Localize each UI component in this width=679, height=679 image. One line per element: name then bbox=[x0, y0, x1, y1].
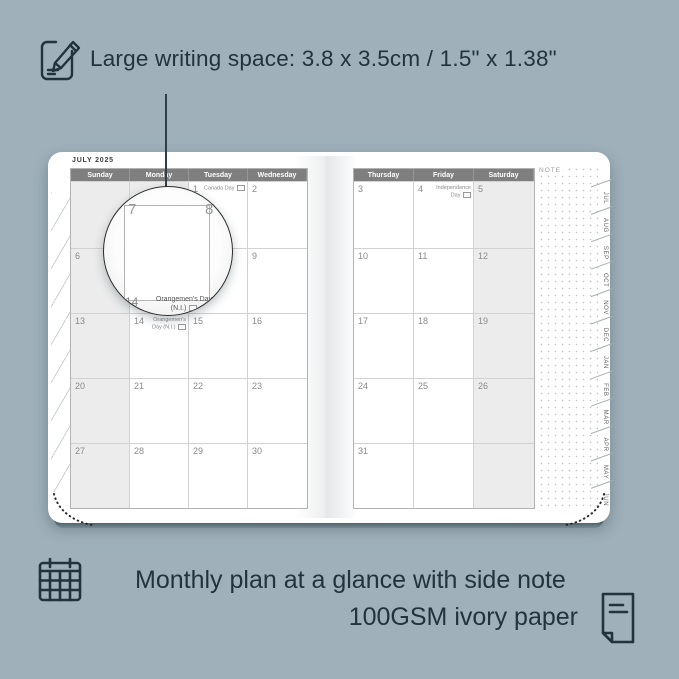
calendar-cell-21: 21 bbox=[130, 378, 189, 443]
pencil-notepad-icon bbox=[38, 33, 84, 85]
calendar-cell-29: 29 bbox=[189, 443, 248, 508]
day-header-tuesday: Tuesday bbox=[189, 169, 248, 181]
calendar-cell-18: 18 bbox=[414, 313, 474, 378]
holiday-label: Orangemen's Day (N.I.) bbox=[144, 317, 186, 332]
day-number: 3 bbox=[358, 184, 363, 194]
day-number: 13 bbox=[75, 316, 85, 326]
calendar-cell-17: 17 bbox=[354, 313, 414, 378]
day-number: 21 bbox=[134, 381, 144, 391]
day-number: 31 bbox=[358, 446, 368, 456]
day-number: 17 bbox=[358, 316, 368, 326]
day-number: 23 bbox=[252, 381, 262, 391]
tab-divider bbox=[591, 480, 613, 488]
day-number: 18 bbox=[418, 316, 428, 326]
flag-icon bbox=[178, 324, 186, 330]
month-tabs: JULAUGSEPOCTNOVDECJANFEBMARAPRMAYJUN bbox=[590, 178, 614, 514]
month-tab-may: MAY bbox=[602, 465, 608, 479]
day-header-monday: Monday bbox=[130, 169, 189, 181]
calendar-cell-31: 31 bbox=[354, 443, 414, 508]
day-number: 26 bbox=[478, 381, 488, 391]
calendar-cell-20: 20 bbox=[71, 378, 130, 443]
holiday-label: Canada Day bbox=[204, 185, 245, 193]
day-number: 27 bbox=[75, 446, 85, 456]
day-number: 30 bbox=[252, 446, 262, 456]
corner-perforation-right bbox=[564, 492, 606, 528]
day-number: 22 bbox=[193, 381, 203, 391]
day-number: 9 bbox=[252, 251, 257, 261]
month-tab-feb: FEB bbox=[602, 383, 608, 396]
month-tab-dec: DEC bbox=[602, 328, 608, 343]
calendar-cell-3: 3 bbox=[354, 181, 414, 248]
month-title: JULY 2025 bbox=[72, 157, 114, 164]
calendar-cell-30: 30 bbox=[248, 443, 307, 508]
day-header-friday: Friday bbox=[414, 169, 474, 181]
calendar-cell bbox=[414, 443, 474, 508]
paper-icon bbox=[594, 592, 640, 646]
tab-divider bbox=[591, 316, 613, 324]
calendar-cell-25: 25 bbox=[414, 378, 474, 443]
day-number: 14 bbox=[134, 316, 144, 326]
flag-icon bbox=[463, 192, 471, 198]
calendar-cell-4: 4Independence Day bbox=[414, 181, 474, 248]
note-dot-grid bbox=[538, 166, 598, 507]
magnified-day-8: 8 bbox=[205, 201, 213, 218]
day-header-thursday: Thursday bbox=[354, 169, 414, 181]
day-number: 25 bbox=[418, 381, 428, 391]
bottom-feature-line2: 100GSM ivory paper bbox=[349, 603, 578, 632]
calendar-cell-11: 11 bbox=[414, 248, 474, 313]
month-tab-mar: MAR bbox=[602, 410, 608, 425]
magnified-day-14: 14 bbox=[125, 295, 138, 309]
magnifier-circle: 7 8 14 Orangemen's Day (N.I.) bbox=[103, 186, 233, 316]
day-number: 12 bbox=[478, 251, 488, 261]
day-number: 15 bbox=[193, 316, 203, 326]
tab-divider bbox=[591, 426, 613, 434]
month-tab-oct: OCT bbox=[602, 273, 608, 287]
calendar-icon bbox=[36, 556, 84, 604]
month-tab-aug: AUG bbox=[602, 218, 608, 233]
magnified-day-7: 7 bbox=[128, 201, 136, 218]
day-number: 6 bbox=[75, 251, 80, 261]
month-tab-jul: JUL bbox=[602, 192, 608, 205]
right-calendar-grid: ThursdayFridaySaturday34Independence Day… bbox=[353, 168, 535, 509]
day-number: 16 bbox=[252, 316, 262, 326]
calendar-cell-22: 22 bbox=[189, 378, 248, 443]
calendar-cell-19: 19 bbox=[474, 313, 534, 378]
tab-divider bbox=[591, 289, 613, 297]
tab-divider bbox=[591, 234, 613, 242]
day-number: 29 bbox=[193, 446, 203, 456]
calendar-cell-13: 13 bbox=[71, 313, 130, 378]
calendar-cell bbox=[474, 443, 534, 508]
month-tab-apr: APR bbox=[602, 438, 608, 452]
bottom-feature-line1: Monthly plan at a glance with side note bbox=[135, 566, 566, 595]
note-label: NOTE bbox=[539, 167, 563, 175]
calendar-cell-12: 12 bbox=[474, 248, 534, 313]
flag-icon bbox=[237, 185, 245, 191]
day-number: 10 bbox=[358, 251, 368, 261]
calendar-cell-23: 23 bbox=[248, 378, 307, 443]
page-edge-hatching bbox=[51, 192, 71, 492]
writing-space-outline bbox=[124, 205, 210, 301]
calendar-cell-10: 10 bbox=[354, 248, 414, 313]
tab-divider bbox=[591, 206, 613, 214]
day-number: 28 bbox=[134, 446, 144, 456]
flag-icon bbox=[189, 305, 197, 311]
day-header-saturday: Saturday bbox=[474, 169, 534, 181]
calendar-cell-28: 28 bbox=[130, 443, 189, 508]
tab-divider bbox=[591, 179, 613, 187]
calendar-cell-15: 15 bbox=[189, 313, 248, 378]
calendar-cell-26: 26 bbox=[474, 378, 534, 443]
top-feature-text: Large writing space: 3.8 x 3.5cm / 1.5" … bbox=[90, 46, 557, 72]
corner-perforation-left bbox=[52, 492, 94, 528]
day-number: 4 bbox=[418, 184, 423, 194]
day-header-sunday: Sunday bbox=[71, 169, 130, 181]
day-number: 19 bbox=[478, 316, 488, 326]
day-header-wednesday: Wednesday bbox=[248, 169, 307, 181]
tab-divider bbox=[591, 398, 613, 406]
month-tab-jan: JAN bbox=[602, 356, 608, 369]
month-tab-nov: NOV bbox=[602, 300, 608, 315]
day-number: 2 bbox=[252, 184, 257, 194]
calendar-cell-2: 2 bbox=[248, 181, 307, 248]
magnified-holiday: Orangemen's Day (N.I.) bbox=[142, 295, 226, 313]
holiday-label: Independence Day bbox=[429, 185, 471, 200]
day-number: 24 bbox=[358, 381, 368, 391]
tab-divider bbox=[591, 261, 613, 269]
calendar-cell-24: 24 bbox=[354, 378, 414, 443]
month-tab-sep: SEP bbox=[602, 246, 608, 260]
tab-divider bbox=[591, 371, 613, 379]
tab-divider bbox=[591, 453, 613, 461]
calendar-cell-9: 9 bbox=[248, 248, 307, 313]
calendar-cell-14: 14Orangemen's Day (N.I.) bbox=[130, 313, 189, 378]
day-number: 20 bbox=[75, 381, 85, 391]
calendar-cell-5: 5 bbox=[474, 181, 534, 248]
calendar-cell-16: 16 bbox=[248, 313, 307, 378]
tab-divider bbox=[591, 343, 613, 351]
day-number: 5 bbox=[478, 184, 483, 194]
day-number: 11 bbox=[418, 251, 427, 261]
pointer-line bbox=[165, 94, 167, 188]
